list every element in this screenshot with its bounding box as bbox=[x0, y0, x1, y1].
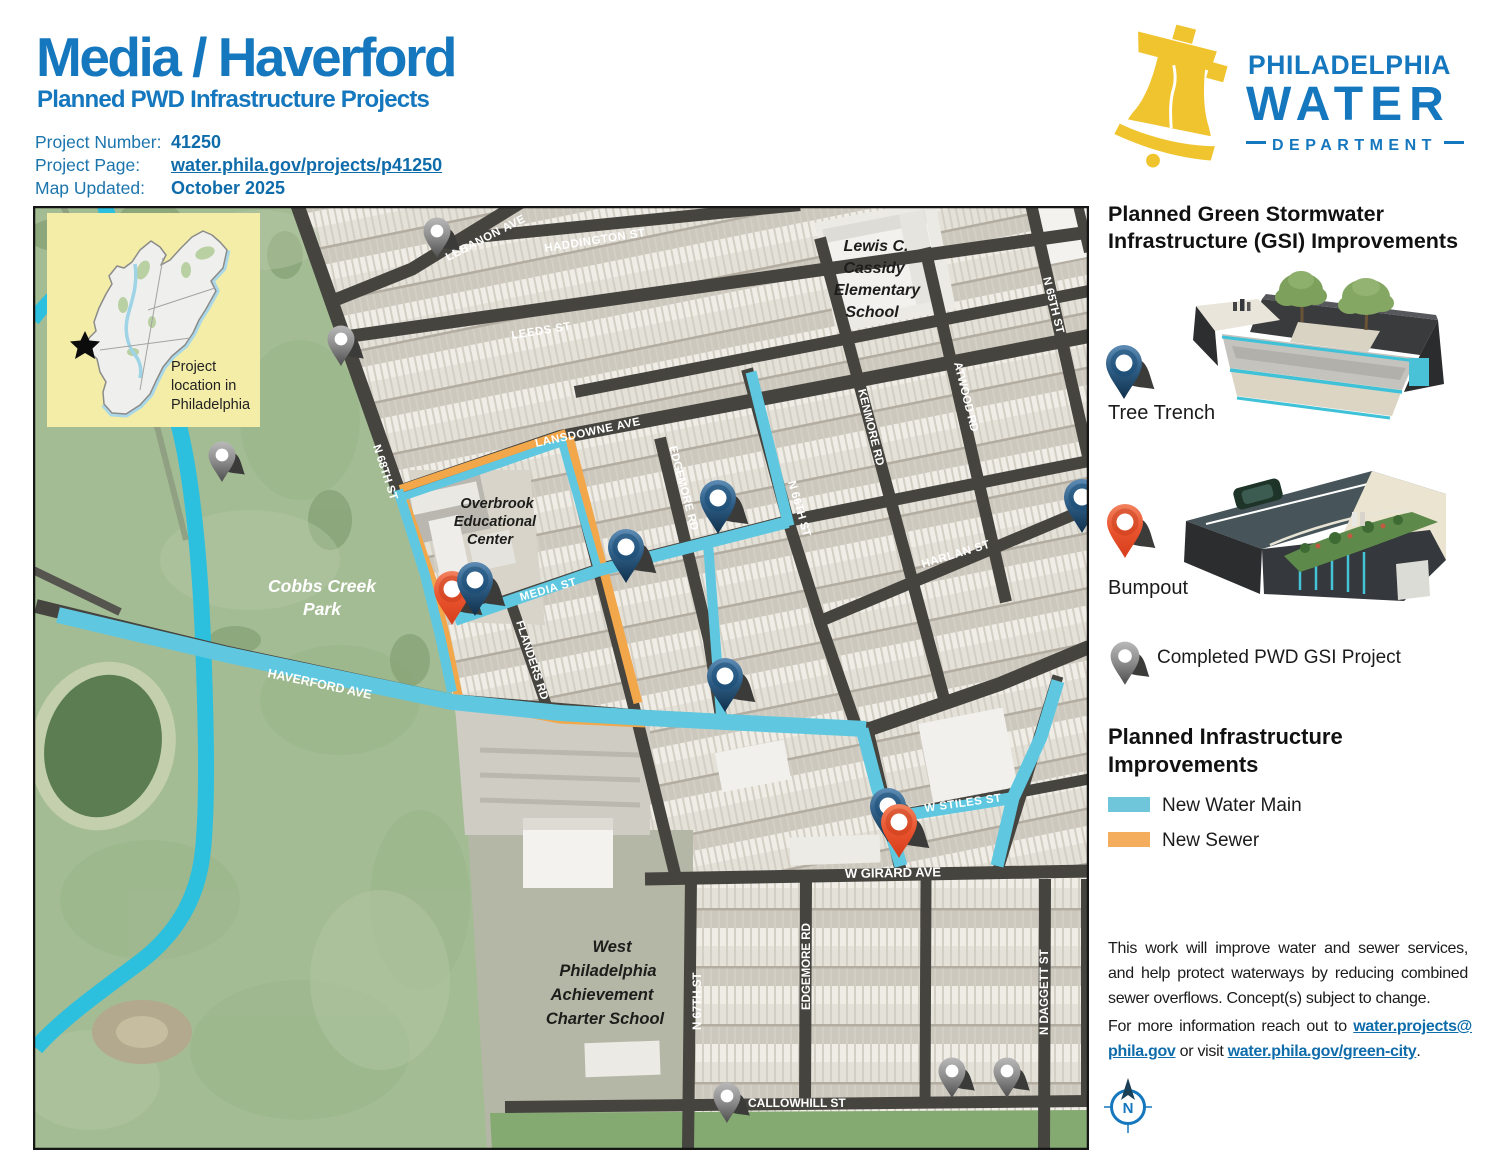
svg-text:Improvements: Improvements bbox=[1108, 752, 1258, 777]
svg-text:New Sewer: New Sewer bbox=[1162, 830, 1260, 851]
svg-text:Achievement: Achievement bbox=[550, 986, 655, 1004]
svg-text:W GIRARD AVE: W GIRARD AVE bbox=[845, 864, 942, 881]
svg-text:Infrastructure (GSI) Improveme: Infrastructure (GSI) Improvements bbox=[1108, 229, 1458, 253]
svg-text:West: West bbox=[592, 938, 633, 956]
svg-text:Elementary: Elementary bbox=[834, 282, 921, 299]
svg-text:Tree Trench: Tree Trench bbox=[1108, 402, 1215, 424]
svg-text:Planned Infrastructure: Planned Infrastructure bbox=[1108, 724, 1343, 749]
svg-text:Charter School: Charter School bbox=[546, 1010, 665, 1028]
svg-text:Park: Park bbox=[303, 599, 342, 619]
svg-text:Educational: Educational bbox=[454, 514, 537, 530]
svg-text:Cassidy: Cassidy bbox=[843, 260, 905, 277]
svg-text:Planned Green Stormwater: Planned Green Stormwater bbox=[1108, 202, 1385, 226]
svg-text:EDGEMORE RD: EDGEMORE RD bbox=[801, 923, 813, 1010]
svg-text:location in: location in bbox=[171, 378, 236, 394]
svg-text:Project: Project bbox=[171, 359, 216, 375]
svg-text:Completed PWD GSI Project: Completed PWD GSI Project bbox=[1157, 647, 1402, 668]
svg-text:New Water Main: New Water Main bbox=[1162, 795, 1302, 816]
svg-text:N DAGGETT ST: N DAGGETT ST bbox=[1039, 949, 1051, 1035]
svg-text:Overbrook: Overbrook bbox=[460, 496, 534, 512]
svg-text:N: N bbox=[1123, 1100, 1134, 1117]
svg-text:Bumpout: Bumpout bbox=[1108, 577, 1188, 599]
svg-text:CALLOWHILL ST: CALLOWHILL ST bbox=[748, 1096, 846, 1110]
svg-text:Cobbs Creek: Cobbs Creek bbox=[268, 576, 377, 596]
svg-text:Center: Center bbox=[467, 532, 514, 548]
svg-text:Philadelphia: Philadelphia bbox=[559, 962, 656, 980]
svg-text:Philadelphia: Philadelphia bbox=[171, 397, 251, 413]
svg-text:School: School bbox=[845, 304, 899, 321]
svg-text:Lewis C.: Lewis C. bbox=[844, 238, 909, 255]
svg-text:N 67TH ST: N 67TH ST bbox=[692, 972, 704, 1030]
